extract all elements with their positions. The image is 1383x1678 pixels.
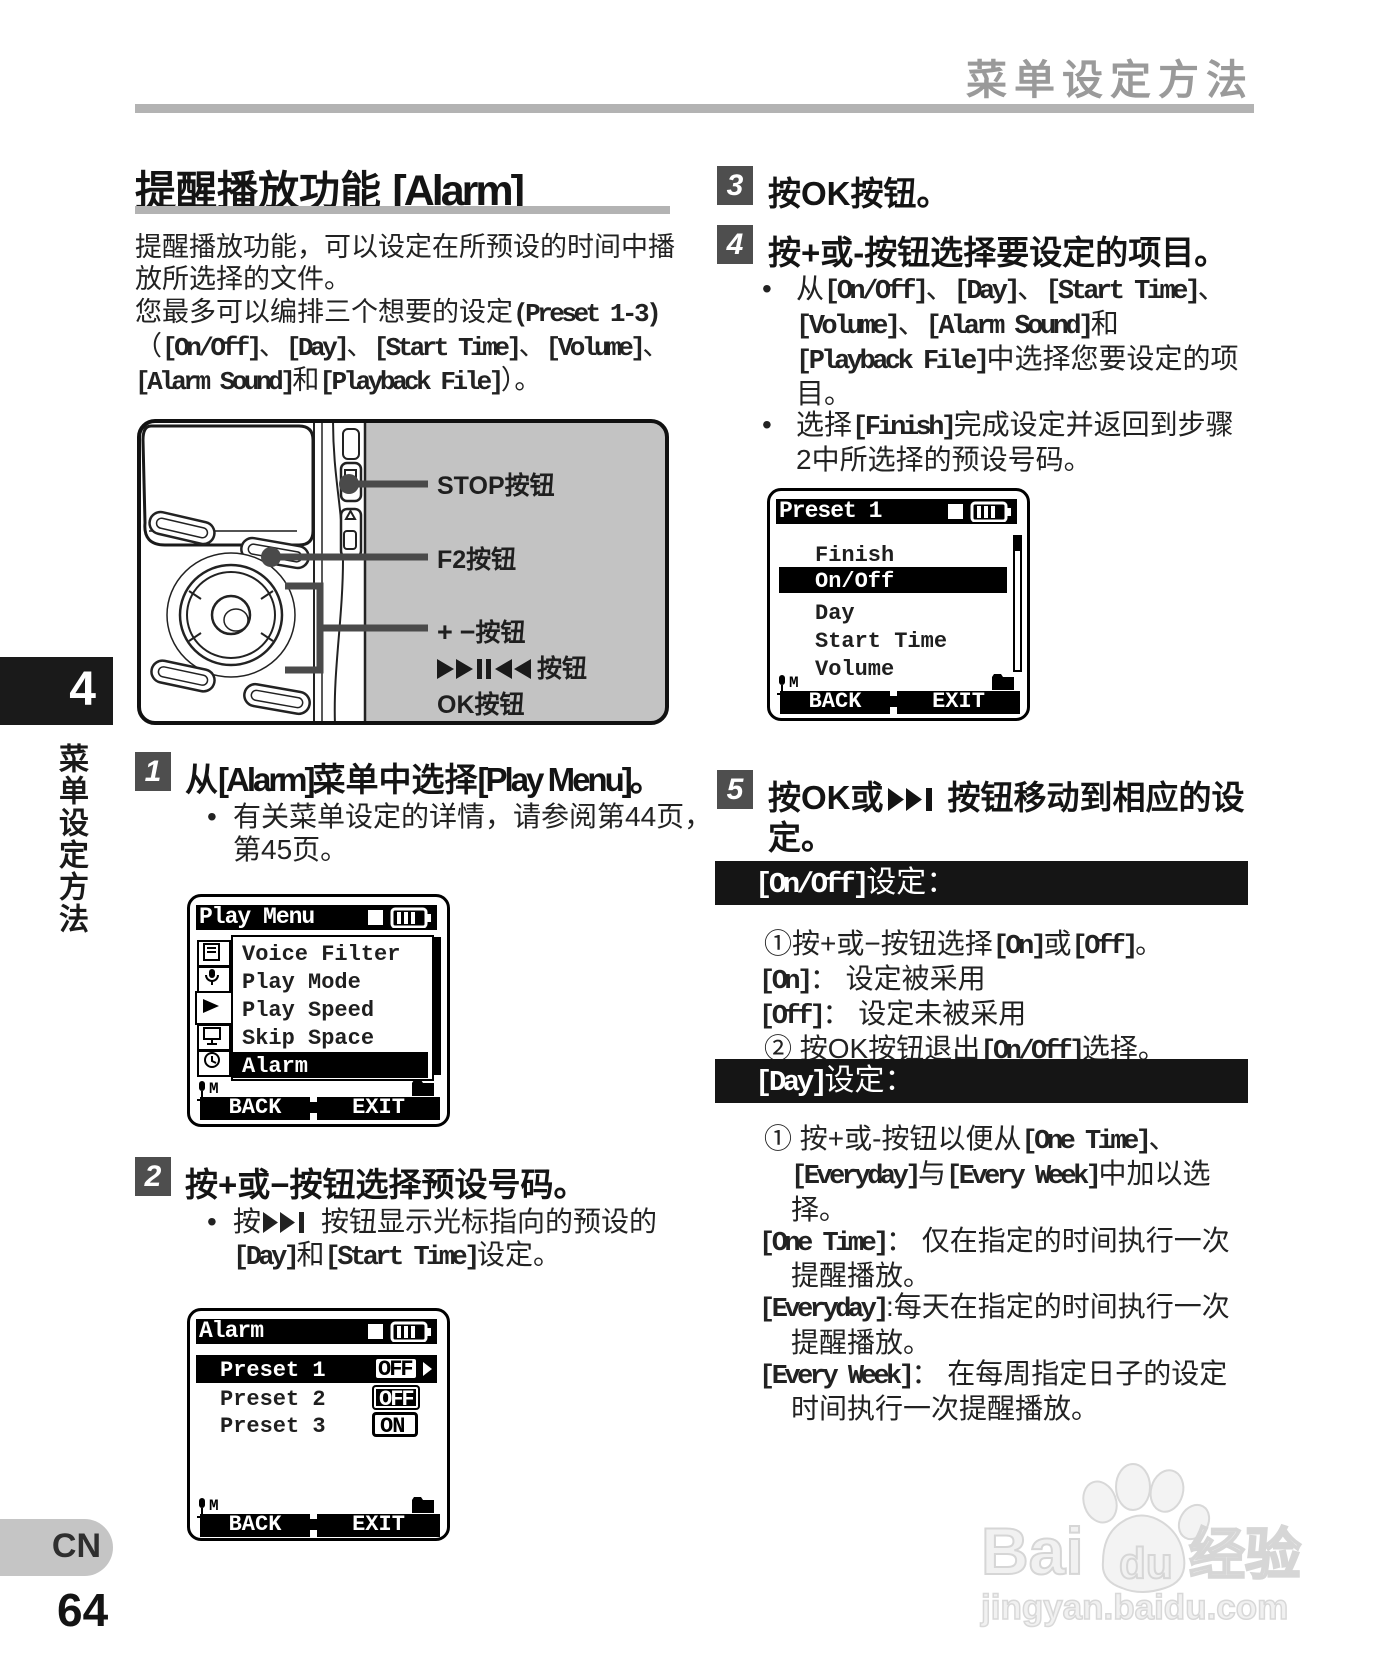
svg-text:经验: 经验 [1189,1523,1301,1586]
svg-text:M: M [209,1497,219,1515]
svg-text:du: du [1119,1539,1173,1588]
svg-text:jingyan.baidu.com: jingyan.baidu.com [980,1588,1288,1627]
svg-text:M: M [789,674,799,692]
svg-text:Bai: Bai [981,1514,1084,1588]
svg-text:M: M [209,1080,219,1098]
